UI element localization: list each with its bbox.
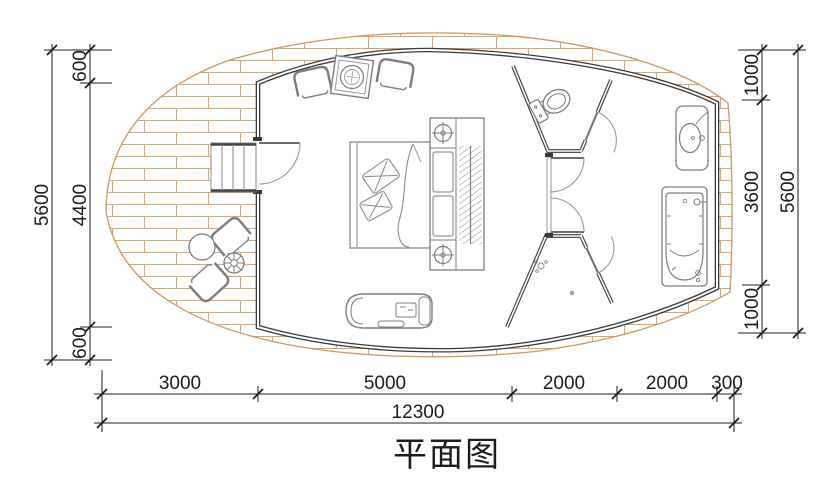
bed	[350, 142, 433, 248]
dim-bottom-5000: 5000	[364, 373, 406, 394]
entry-stairs	[211, 143, 256, 192]
deck-round-table	[189, 234, 215, 260]
floor-drain	[570, 291, 574, 295]
bathtub	[662, 187, 707, 286]
dim-right-total-5600: 5600	[778, 171, 799, 213]
sink-vanity	[676, 106, 708, 170]
wardrobe-hanging-clothes	[459, 146, 482, 244]
armchair-top-right	[376, 58, 414, 90]
dim-left-4400: 4400	[70, 184, 91, 226]
floor-plan-drawing: 600 4400 600 5600 1000 3600 1000 5600	[0, 0, 837, 496]
floor-plan-canvas: 600 4400 600 5600 1000 3600 1000 5600	[0, 0, 837, 496]
dim-right-1000-bottom: 1000	[742, 288, 763, 330]
plant-side-table	[331, 56, 374, 99]
dim-bottom-3000: 3000	[159, 373, 201, 394]
deck-small-table	[224, 253, 244, 273]
dim-right-1000-top: 1000	[742, 54, 763, 96]
dim-left-600-top: 600	[70, 50, 91, 82]
dim-right-3600: 3600	[742, 171, 763, 213]
dim-left-600-bottom: 600	[70, 327, 91, 359]
dim-left-total-5600: 5600	[32, 184, 53, 226]
headboard-console	[430, 118, 484, 270]
dim-bottom-total-12300: 12300	[392, 402, 445, 423]
dim-bottom-300: 300	[711, 373, 743, 394]
drawing-title: 平面图	[393, 436, 501, 474]
dim-bottom-2000-a: 2000	[543, 373, 585, 394]
dim-bottom-2000-b: 2000	[646, 373, 688, 394]
chaise-bench	[346, 294, 432, 328]
